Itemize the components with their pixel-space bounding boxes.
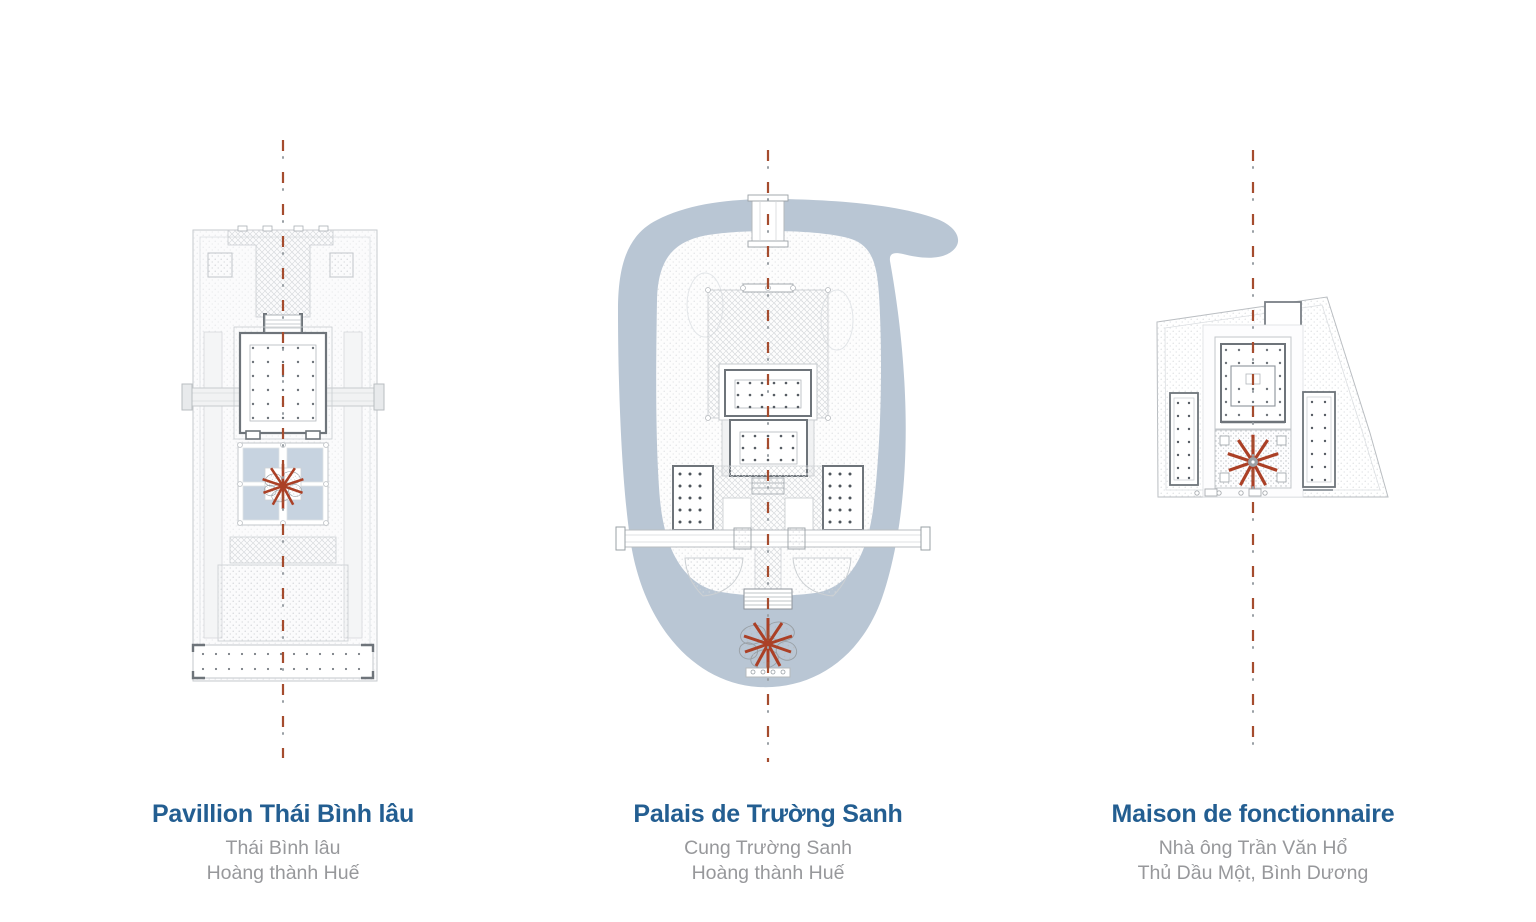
side-pavilion-left <box>673 466 713 530</box>
figure-subtitle-2: Hoàng thành Huế <box>100 861 466 887</box>
site-plan-maison-fonctionnaire <box>1070 0 1436 780</box>
site-plan-truong-sanh <box>585 0 1105 780</box>
figure-subtitle-1: Cung Trường Sanh <box>585 836 951 862</box>
south-gallery <box>616 527 930 550</box>
annex-building <box>1265 302 1301 326</box>
side-building-left <box>1170 393 1198 485</box>
figure-subtitle-2: Thủ Dầu Một, Bình Dương <box>1070 861 1436 887</box>
side-building-right <box>1303 392 1335 487</box>
figure-maison-fonctionnaire: Maison de fonctionnaire Nhà ông Trần Văn… <box>1070 0 1436 922</box>
figure-title: Palais de Trường Sanh <box>585 800 951 829</box>
side-pavilion-right <box>823 466 863 530</box>
figure-subtitle-2: Hoàng thành Huế <box>585 861 951 887</box>
figure-truong-sanh: Palais de Trường Sanh Cung Trường Sanh H… <box>585 0 1105 922</box>
site-plan-thai-binh-lau <box>100 0 466 780</box>
caption-maison-fonctionnaire: Maison de fonctionnaire Nhà ông Trần Văn… <box>1070 800 1436 887</box>
pond <box>238 443 329 526</box>
page: Pavillion Thái Bình lâu Thái Bình lâu Ho… <box>0 0 1536 922</box>
figure-thai-binh-lau: Pavillion Thái Bình lâu Thái Bình lâu Ho… <box>100 0 466 922</box>
figure-subtitle-1: Nhà ông Trần Văn Hổ <box>1070 836 1436 862</box>
figure-title: Maison de fonctionnaire <box>1070 800 1436 829</box>
side-square-right <box>330 253 353 277</box>
figure-subtitle-1: Thái Bình lâu <box>100 836 466 862</box>
figure-title: Pavillion Thái Bình lâu <box>100 800 466 829</box>
caption-truong-sanh: Palais de Trường Sanh Cung Trường Sanh H… <box>585 800 951 887</box>
side-square-left <box>208 253 232 277</box>
caption-thai-binh-lau: Pavillion Thái Bình lâu Thái Bình lâu Ho… <box>100 800 466 887</box>
